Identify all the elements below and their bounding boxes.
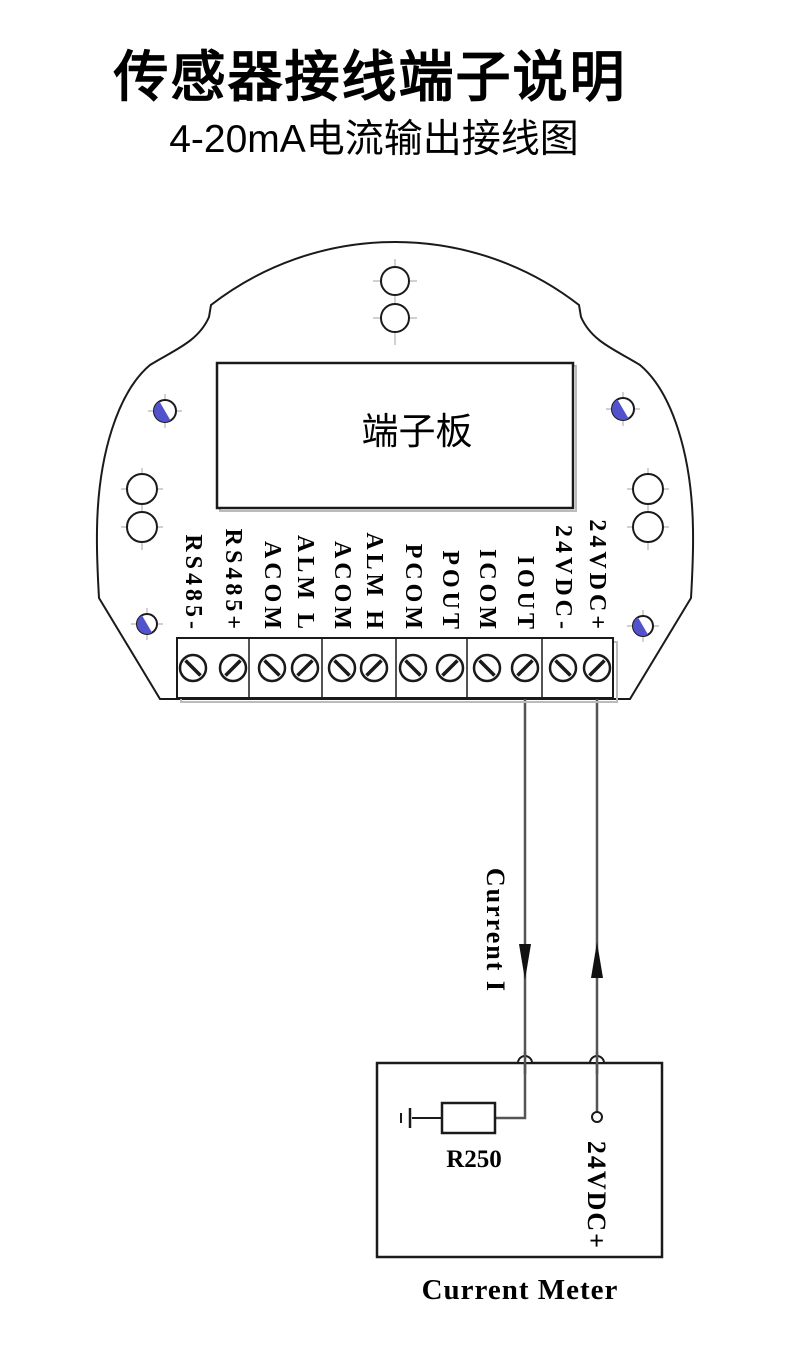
terminal-strip: [177, 638, 617, 702]
page-title: 传感器接线端子说明: [0, 32, 740, 112]
terminal-label: 24VDC-: [552, 525, 574, 633]
terminal-label: RS485+: [222, 529, 244, 633]
meter-supply-label: 24VDC+: [583, 1141, 609, 1250]
terminal-label: PCOM: [402, 544, 424, 633]
terminal-board-label: 端子板: [217, 401, 573, 455]
resistor-label: R250: [424, 1146, 524, 1174]
arrow-up-icon: [591, 942, 603, 978]
terminal-label: ALM L: [294, 535, 316, 633]
terminal-label: POUT: [439, 550, 461, 633]
terminal-label: ACOM: [261, 541, 283, 633]
terminal-label: 24VDC+: [586, 519, 608, 633]
terminal-label: RS485-: [182, 534, 204, 633]
contact-probe-icon: [401, 1108, 410, 1128]
resistor-icon: [412, 1103, 495, 1133]
current-label: Current I: [482, 868, 508, 993]
wiring-diagram-page: 传感器接线端子说明 4-20mA电流输出接线图 端子板 RS485- RS485…: [0, 0, 790, 1356]
diagram-svg: [0, 0, 790, 1356]
mounting-hole-icon: [373, 259, 417, 345]
terminal-label: ICOM: [476, 549, 498, 633]
meter-caption: Current Meter: [370, 1274, 670, 1307]
page-subtitle: 4-20mA电流输出接线图: [0, 108, 748, 164]
arrow-down-icon: [519, 944, 531, 980]
meter-terminal-icon: [592, 1112, 602, 1122]
terminal-label: ACOM: [331, 541, 353, 633]
terminal-label: IOUT: [514, 556, 536, 633]
terminal-label: ALM H: [363, 532, 385, 633]
